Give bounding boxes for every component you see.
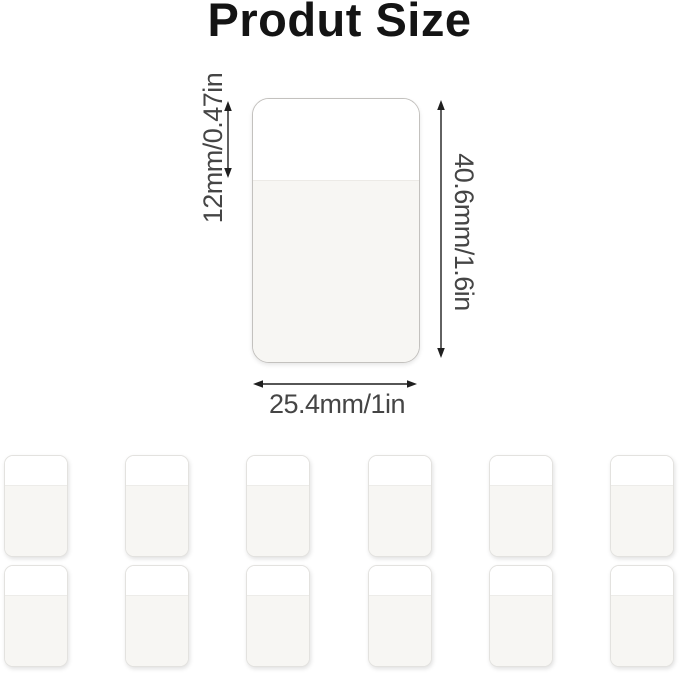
thumbnail-clear-section bbox=[369, 456, 431, 485]
product-thumbnail bbox=[125, 455, 189, 557]
product-thumbnail bbox=[125, 565, 189, 667]
product-thumbnail bbox=[246, 455, 310, 557]
product-thumbnail bbox=[489, 565, 553, 667]
thumbnail-clear-section bbox=[126, 456, 188, 485]
product-gallery bbox=[4, 455, 674, 667]
thumbnail-clear-section bbox=[611, 456, 673, 485]
thumbnail-body-section bbox=[490, 595, 552, 666]
thumbnail-body-section bbox=[611, 595, 673, 666]
product-thumbnail bbox=[489, 455, 553, 557]
thumbnail-body-section bbox=[369, 595, 431, 666]
product-size-diagram: Produt Size 12mm/0.47in 40.6mm/1.6in 25.… bbox=[0, 0, 679, 675]
thumbnail-clear-section bbox=[5, 566, 67, 595]
thumbnail-clear-section bbox=[369, 566, 431, 595]
product-thumbnail bbox=[610, 455, 674, 557]
thumbnail-body-section bbox=[611, 485, 673, 556]
thumbnail-clear-section bbox=[247, 456, 309, 485]
product-thumbnail bbox=[4, 455, 68, 557]
thumbnail-body-section bbox=[490, 485, 552, 556]
gallery-row bbox=[4, 455, 674, 557]
thumbnail-body-section bbox=[247, 595, 309, 666]
width-label: 25.4mm/1in bbox=[237, 388, 437, 420]
thumbnail-clear-section bbox=[490, 566, 552, 595]
thumbnail-body-section bbox=[5, 595, 67, 666]
top-section-height-arrow-icon bbox=[222, 101, 234, 178]
product-body-section bbox=[253, 180, 419, 362]
total-height-arrow-icon bbox=[435, 100, 447, 358]
thumbnail-clear-section bbox=[611, 566, 673, 595]
product-thumbnail bbox=[368, 455, 432, 557]
thumbnail-body-section bbox=[369, 485, 431, 556]
product-thumbnail bbox=[368, 565, 432, 667]
thumbnail-clear-section bbox=[5, 456, 67, 485]
thumbnail-body-section bbox=[126, 485, 188, 556]
product-clear-section bbox=[253, 99, 419, 180]
thumbnail-clear-section bbox=[126, 566, 188, 595]
product-thumbnail bbox=[4, 565, 68, 667]
product-thumbnail bbox=[246, 565, 310, 667]
thumbnail-body-section bbox=[5, 485, 67, 556]
page-title: Produt Size bbox=[0, 0, 679, 43]
total-height-label: 40.6mm/1.6in bbox=[448, 152, 480, 312]
gallery-row bbox=[4, 565, 674, 667]
thumbnail-body-section bbox=[126, 595, 188, 666]
thumbnail-clear-section bbox=[490, 456, 552, 485]
product-thumbnail bbox=[610, 565, 674, 667]
product-image bbox=[252, 98, 420, 363]
thumbnail-clear-section bbox=[247, 566, 309, 595]
thumbnail-body-section bbox=[247, 485, 309, 556]
